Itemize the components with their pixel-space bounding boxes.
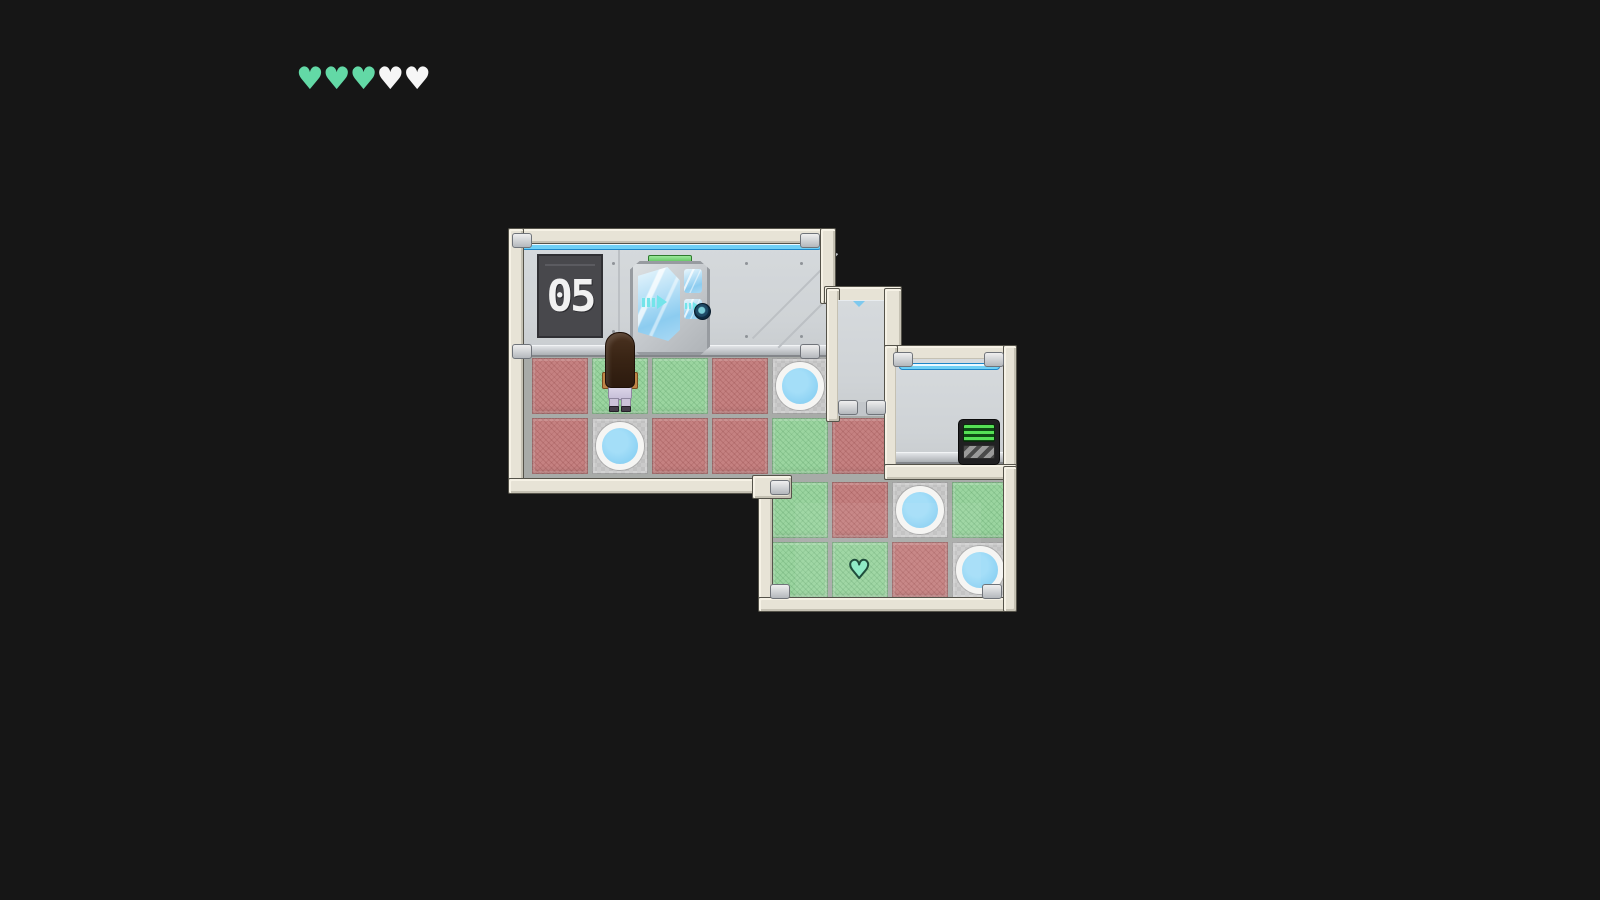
door-window-small-top — [684, 269, 702, 293]
corner-brace — [770, 584, 790, 599]
corridor-wall — [838, 300, 884, 416]
heart-filled-icon: ♥ — [323, 64, 349, 95]
corner-brace — [893, 352, 913, 367]
rivet — [800, 335, 803, 338]
terminal-keypad-icon — [963, 445, 995, 459]
player-character[interactable] — [602, 332, 638, 412]
corner-brace — [512, 344, 532, 359]
door-arrow-icon — [642, 295, 667, 309]
rivet — [612, 262, 615, 265]
player-boot-right — [621, 406, 631, 412]
door-lock-gear-icon — [694, 303, 711, 320]
tile-pad — [892, 482, 948, 538]
terminal-screen-icon — [963, 424, 995, 442]
corner-brace — [512, 233, 532, 248]
rivet — [800, 262, 803, 265]
heart-pickup[interactable]: ♥ — [848, 557, 870, 582]
level-sign: 05 — [537, 254, 603, 338]
exit-door[interactable] — [630, 255, 710, 356]
tile-red — [832, 418, 888, 474]
game-stage[interactable]: ♥♥♥♥♥ 05 ♥ — [0, 0, 1600, 900]
tile-red — [532, 358, 588, 414]
heart-empty-icon: ♥ — [403, 64, 429, 95]
tile-red — [832, 482, 888, 538]
rivet — [745, 262, 748, 265]
player-hair — [605, 332, 635, 388]
level-number: 05 — [547, 271, 594, 322]
tile-red — [892, 542, 948, 598]
rivet — [745, 335, 748, 338]
room-left-frame-bottom — [508, 478, 792, 494]
player-boot-left — [609, 406, 619, 412]
heart-empty-icon: ♥ — [376, 64, 402, 95]
room-right-frame-bottom — [884, 464, 1017, 480]
tile-red — [652, 418, 708, 474]
room-left-frame-top — [508, 228, 836, 244]
corner-brace — [982, 584, 1002, 599]
tile-red — [712, 358, 768, 414]
heart-filled-icon: ♥ — [350, 64, 376, 95]
corner-brace — [770, 480, 790, 495]
tile-pad — [772, 358, 828, 414]
corridor-brace-right — [866, 400, 886, 415]
corner-brace — [800, 344, 820, 359]
corridor-brace-left — [838, 400, 858, 415]
room-bottom-frame-bottom — [758, 597, 1017, 612]
corner-brace — [984, 352, 1004, 367]
room-left-frame-left — [508, 228, 524, 494]
room-bottom-frame-right — [1003, 466, 1017, 612]
tile-green — [772, 418, 828, 474]
health-hearts: ♥♥♥♥♥ — [296, 64, 429, 95]
tile-pad — [592, 418, 648, 474]
tile-green — [952, 482, 1008, 538]
tile-green — [652, 358, 708, 414]
corner-brace — [800, 233, 820, 248]
wall-terminal[interactable] — [958, 419, 1000, 465]
heart-filled-icon: ♥ — [296, 64, 322, 95]
tile-red — [712, 418, 768, 474]
tile-red — [532, 418, 588, 474]
room-right-frame-right — [1003, 345, 1017, 480]
